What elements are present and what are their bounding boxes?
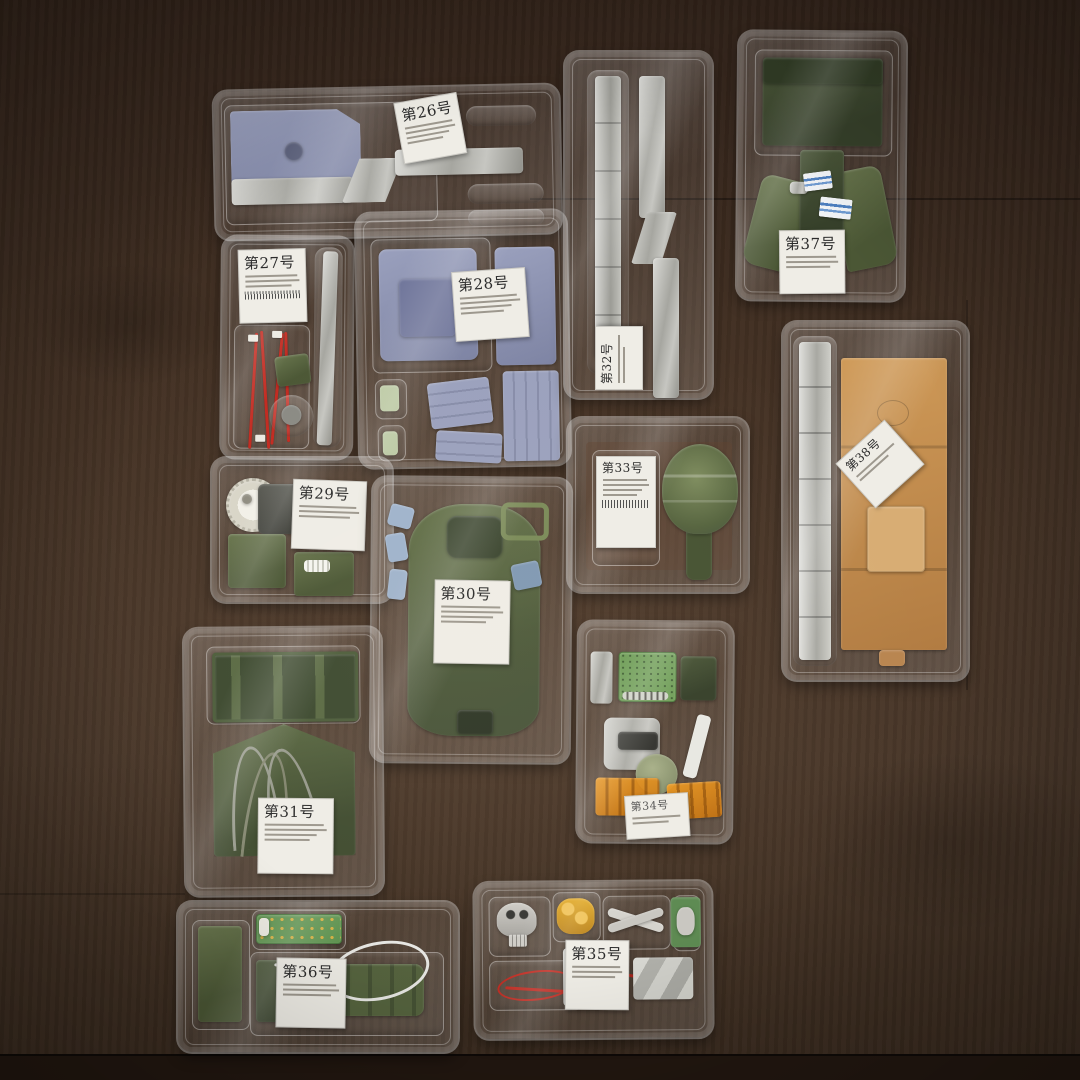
- skull-part: [496, 902, 536, 936]
- blister-tray-35: 第35号: [474, 881, 712, 1039]
- issue-number: 第35号: [571, 946, 623, 964]
- label-text-line: [299, 510, 359, 514]
- issue-number: 第32号: [601, 332, 615, 384]
- issue-label-30: 第30号: [433, 579, 510, 664]
- issue-number: 第36号: [282, 963, 340, 981]
- dome-stem-part: [686, 532, 712, 580]
- diecast-rail-part: [631, 212, 677, 264]
- green-bracket-part: [274, 353, 312, 387]
- small-green-part: [380, 385, 399, 411]
- label-text-line: [299, 515, 350, 519]
- gear-hub: [242, 494, 252, 504]
- issue-label-32: 第32号: [595, 326, 643, 390]
- label-text-line: [786, 256, 836, 258]
- label-text-line: [603, 494, 637, 496]
- blister-tray-31: 第31号: [184, 627, 383, 896]
- label-text-line: [632, 814, 680, 819]
- panel-recess-detail: [399, 278, 456, 337]
- label-text-line: [245, 279, 299, 282]
- label-text-line: [299, 505, 356, 509]
- side-panel-part: [503, 370, 561, 461]
- label-text-line: [246, 285, 292, 288]
- small-sprue-part: [384, 532, 408, 563]
- label-text-line: [603, 484, 649, 486]
- instruction-sticker: [819, 196, 853, 219]
- green-panel-part: [198, 926, 242, 1022]
- label-text-line: [572, 971, 622, 973]
- label-text-line: [572, 976, 615, 978]
- metal-bar-segment: [231, 177, 354, 206]
- label-text-line: [572, 966, 620, 968]
- cardboard-window: [867, 506, 925, 572]
- emblem-part: [677, 907, 695, 935]
- molded-pocket: [467, 183, 543, 205]
- label-text-line: [603, 479, 647, 481]
- blister-tray-27: 第27号: [221, 236, 353, 458]
- green-sprue-part: [212, 651, 359, 722]
- label-text-line: [618, 335, 620, 383]
- blister-tray-28: 第28号: [356, 210, 570, 468]
- issue-number: 第28号: [457, 273, 520, 295]
- small-sprue-part: [510, 560, 543, 591]
- label-text-line: [245, 274, 297, 277]
- blister-tray-38: 第38号: [783, 322, 968, 680]
- gearbox-block-part: [294, 552, 354, 596]
- issue-label-31: 第31号: [257, 798, 334, 875]
- skull-jaw-part: [509, 935, 527, 947]
- molded-pocket: [466, 105, 536, 126]
- label-barcode: [245, 290, 301, 299]
- spring-part: [304, 560, 330, 572]
- issue-number: 第33号: [602, 462, 650, 476]
- issue-label-36: 第36号: [275, 957, 346, 1028]
- small-sprue-part: [387, 568, 408, 600]
- label-text-line: [265, 824, 324, 827]
- issue-label-27: 第27号: [238, 248, 308, 324]
- label-text-line: [441, 606, 500, 609]
- hatch-panel-part: [435, 430, 502, 463]
- blister-tray-30: 第30号: [371, 477, 571, 763]
- blister-tray-36: 第36号: [178, 902, 458, 1052]
- round-metal-part: [281, 405, 301, 425]
- small-sprue-part: [387, 503, 416, 530]
- foil-pouch-part: [633, 957, 693, 1000]
- gearbox-plate-part: [228, 534, 286, 588]
- label-text-line: [603, 489, 642, 491]
- label-text-line: [461, 310, 504, 315]
- table-edge: [0, 1054, 1080, 1080]
- wire-connector: [272, 331, 282, 338]
- issue-label-28: 第28号: [451, 267, 530, 342]
- label-text-line: [786, 266, 830, 268]
- cockpit-detail: [763, 57, 883, 84]
- issue-number: 第34号: [630, 798, 683, 814]
- label-text-line: [623, 347, 625, 383]
- pcb-connector: [259, 918, 269, 936]
- issue-label-29: 第29号: [291, 479, 367, 552]
- white-stick-part: [682, 714, 712, 779]
- issue-label-26: 第26号: [393, 92, 467, 164]
- gold-coins-part: [556, 898, 594, 934]
- diecast-rail-part: [653, 258, 679, 398]
- small-green-part: [383, 431, 398, 455]
- blister-tray-29: 第29号: [212, 458, 392, 602]
- label-text-line: [265, 834, 317, 836]
- label-barcode: [602, 500, 650, 508]
- green-block-part: [680, 656, 716, 700]
- label-text-line: [441, 621, 486, 624]
- cardboard-tab: [879, 650, 905, 666]
- green-dome-part: [662, 444, 738, 534]
- small-metal-part: [590, 651, 612, 703]
- label-text-line: [283, 984, 336, 987]
- photo-scene: 第26号 第27号: [0, 0, 1080, 1080]
- wood-plank-seam: [0, 893, 185, 895]
- hull-opening: [447, 516, 503, 558]
- green-bracket-part: [501, 502, 549, 540]
- issue-label-37: 第37号: [779, 230, 846, 295]
- pcb-connector: [622, 692, 668, 700]
- issue-number: 第29号: [298, 485, 361, 504]
- issue-label-33: 第33号: [596, 456, 656, 548]
- label-text-line: [283, 994, 331, 997]
- diecast-rail-part: [639, 76, 665, 218]
- blister-tray-34: 第34号: [577, 621, 733, 842]
- blister-tray-37: 第37号: [737, 31, 906, 300]
- diecast-rail-part: [595, 76, 621, 358]
- issue-label-34: 第34号: [624, 792, 691, 840]
- blister-tray-32: 第32号: [565, 52, 712, 398]
- label-text-line: [786, 261, 838, 263]
- issue-label-35: 第35号: [565, 940, 630, 1011]
- label-text-line: [633, 820, 669, 824]
- wire-connector: [255, 435, 265, 442]
- wire-connector: [248, 335, 258, 342]
- hatch-panel-part: [427, 376, 494, 429]
- issue-number: 第27号: [244, 254, 300, 273]
- hull-notch: [457, 710, 493, 734]
- issue-number: 第37号: [785, 236, 839, 254]
- blister-tray-33: 第33号: [568, 418, 748, 592]
- label-text-line: [265, 829, 327, 832]
- label-text-line: [441, 611, 503, 614]
- label-text-line: [441, 616, 493, 619]
- label-text-line: [265, 839, 310, 841]
- diecast-beam-part: [799, 342, 831, 660]
- label-text-line: [283, 989, 339, 992]
- issue-number: 第31号: [264, 804, 328, 822]
- motor-band: [618, 732, 658, 750]
- instruction-sticker: [803, 170, 833, 192]
- issue-number: 第30号: [440, 585, 504, 603]
